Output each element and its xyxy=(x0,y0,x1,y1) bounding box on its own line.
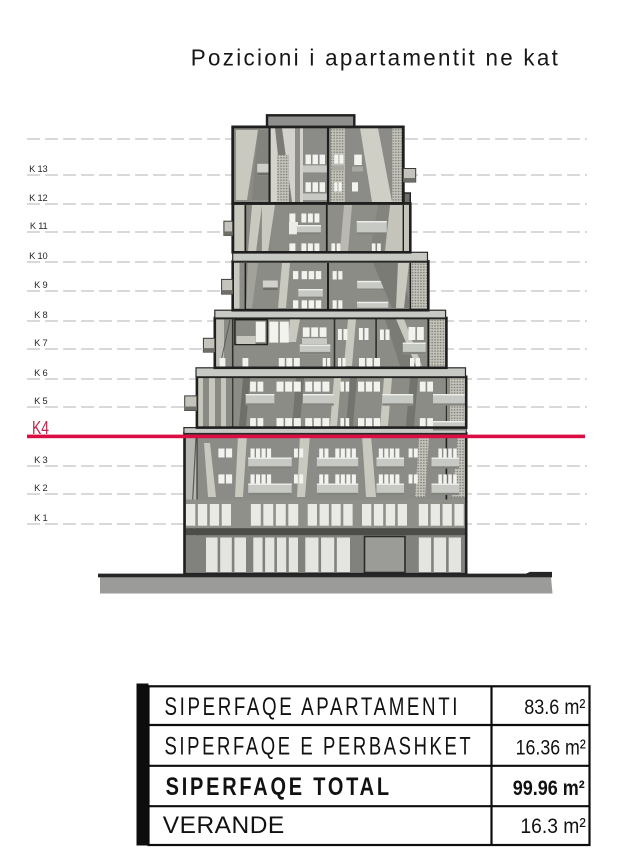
svg-text:SIPERFAQE TOTAL: SIPERFAQE TOTAL xyxy=(166,773,392,801)
svg-text:16.3 m²: 16.3 m² xyxy=(520,815,585,838)
svg-text:83.6 m²: 83.6 m² xyxy=(524,696,585,719)
svg-text:SIPERFAQE APARTAMENTI: SIPERFAQE APARTAMENTI xyxy=(165,692,461,720)
svg-text:K 3: K 3 xyxy=(34,455,47,465)
svg-text:K 13: K 13 xyxy=(29,164,47,174)
svg-text:K4: K4 xyxy=(32,417,49,439)
svg-text:K 5: K 5 xyxy=(34,396,47,406)
svg-text:VERANDE: VERANDE xyxy=(163,812,285,839)
svg-text:K 9: K 9 xyxy=(34,280,47,290)
svg-text:99.96 m²: 99.96 m² xyxy=(513,777,585,800)
svg-text:Pozicioni i apartamentit ne ka: Pozicioni i apartamentit ne kat xyxy=(191,44,560,71)
svg-text:K 7: K 7 xyxy=(34,338,47,348)
svg-text:K 1: K 1 xyxy=(34,513,47,523)
svg-text:16.36 m²: 16.36 m² xyxy=(516,737,586,760)
svg-text:K 2: K 2 xyxy=(34,483,47,493)
svg-text:K 8: K 8 xyxy=(34,310,47,320)
svg-text:K 12: K 12 xyxy=(29,193,47,203)
svg-text:SIPERFAQE E PERBASHKET: SIPERFAQE E PERBASHKET xyxy=(165,732,474,760)
svg-text:K 10: K 10 xyxy=(29,251,47,261)
svg-text:K 6: K 6 xyxy=(34,368,47,378)
svg-text:K 11: K 11 xyxy=(30,221,48,231)
